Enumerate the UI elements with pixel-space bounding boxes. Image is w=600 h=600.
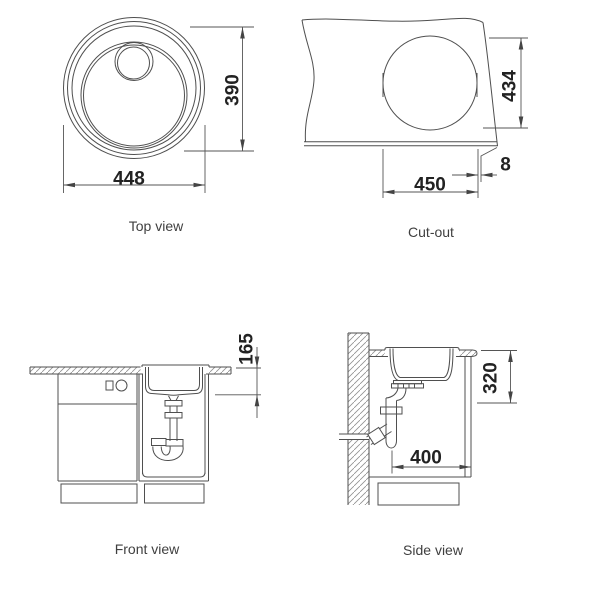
front-view-drawing — [30, 347, 261, 503]
trap-front — [152, 396, 184, 461]
top-view-width-dimension: 448 — [113, 169, 145, 188]
side-view-drawing — [339, 333, 517, 505]
drain-area-circles — [115, 43, 153, 81]
top-view-arrowheads — [64, 27, 245, 187]
sink-front-section — [142, 365, 209, 395]
worktop-front — [30, 367, 231, 374]
worktop-piece-outline — [302, 18, 498, 146]
trap-side — [367, 381, 424, 449]
front-view-depth-dimension: 165 — [237, 333, 256, 365]
cutout-edge-dimension: 8 — [500, 155, 511, 174]
left-cabinet-front — [58, 374, 137, 481]
sink-side-section — [385, 348, 459, 381]
cabinet-side-section — [369, 357, 471, 506]
cutout-view-label: Cut-out — [408, 225, 454, 239]
cutout-height-dimension: 434 — [501, 70, 520, 102]
side-view-label: Side view — [403, 543, 463, 557]
dishwasher-button-square — [106, 381, 113, 390]
plinths-front — [61, 484, 204, 503]
cutout-width-dimension: 450 — [414, 175, 446, 194]
plinth-side — [378, 483, 459, 505]
dishwasher-button-circle — [116, 380, 127, 391]
sink-technical-drawing: 448 390 450 434 8 165 400 320 Top view C… — [0, 0, 600, 600]
top-view-label: Top view — [129, 219, 183, 233]
top-view-height-dimension: 390 — [224, 74, 243, 106]
cutout-circle — [383, 36, 477, 130]
worktop-side — [369, 350, 477, 357]
front-view-label: Front view — [115, 542, 180, 556]
side-view-clearance-dimension: 320 — [482, 362, 501, 394]
wall-section — [339, 333, 369, 505]
cutout-view-drawing — [302, 18, 528, 198]
sink-bowl-circles — [81, 42, 187, 148]
sink-rim-circles — [64, 18, 205, 159]
side-view-offset-dimension: 400 — [410, 449, 442, 468]
